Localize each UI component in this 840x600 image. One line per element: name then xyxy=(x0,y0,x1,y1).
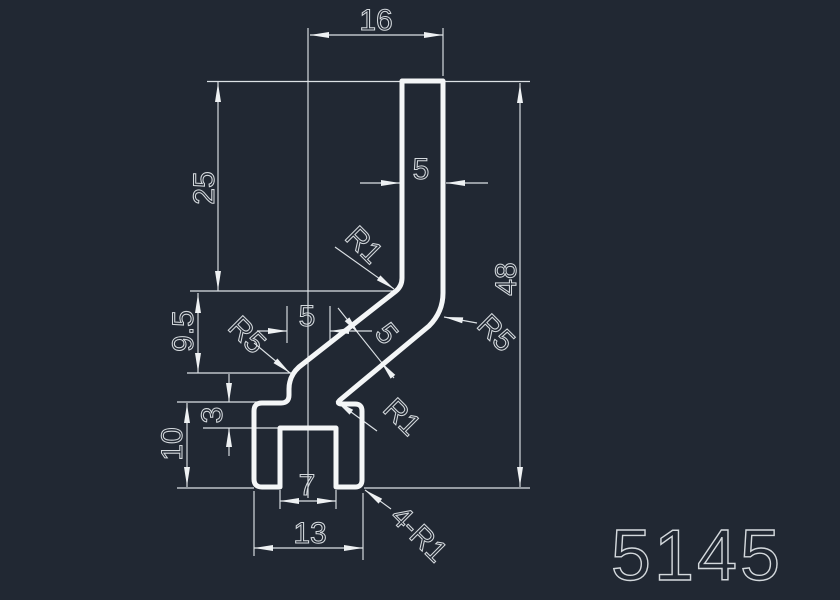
dim-label-9-5: 9.5 xyxy=(167,310,200,352)
drawing-background xyxy=(0,0,840,600)
dim-label-16: 16 xyxy=(359,4,392,37)
cad-viewport: 16 5 25 9.5 3 10 5 5 7 13 48 R1 R5 R5 R1… xyxy=(0,0,840,600)
dim-label-48: 48 xyxy=(490,262,523,295)
dim-label-10: 10 xyxy=(156,427,189,460)
part-number: 5145 xyxy=(611,516,783,596)
dim-label-5-bar: 5 xyxy=(413,153,430,186)
dim-label-3: 3 xyxy=(196,407,229,424)
dim-label-25: 25 xyxy=(188,171,221,204)
cad-drawing-canvas: 16 5 25 9.5 3 10 5 5 7 13 48 R1 R5 R5 R1… xyxy=(0,0,840,600)
dim-label-7: 7 xyxy=(299,469,316,502)
dim-label-13: 13 xyxy=(293,517,326,550)
dim-label-5-land: 5 xyxy=(299,300,316,333)
